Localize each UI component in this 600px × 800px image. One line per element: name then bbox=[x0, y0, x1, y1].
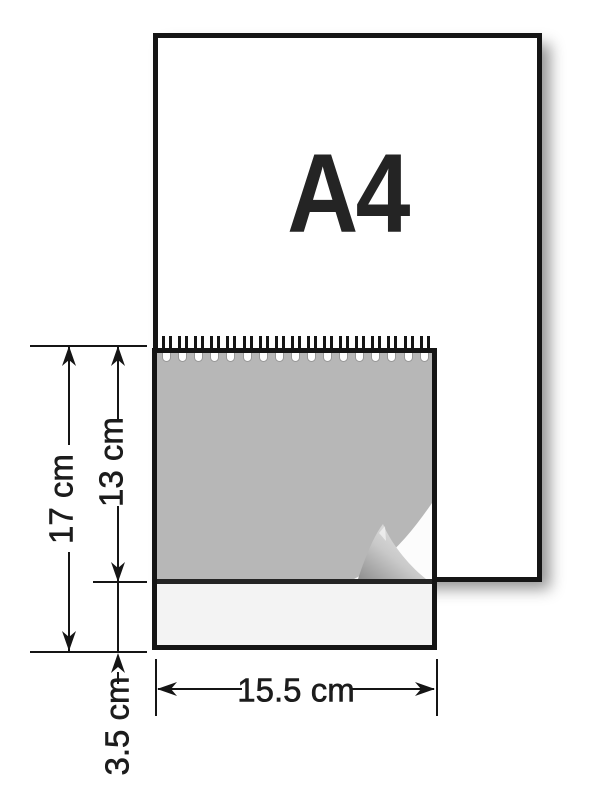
dim-35-connector-line bbox=[117, 583, 119, 651]
dim-35-label: 3.5 cm bbox=[101, 676, 134, 775]
dim-17-label: 17 cm bbox=[45, 454, 78, 544]
a4-label: A4 bbox=[181, 138, 515, 250]
dim-35-stub-line bbox=[117, 672, 119, 684]
tick-top bbox=[30, 345, 147, 347]
dim-17-line-top bbox=[68, 347, 70, 445]
dim-13-arrow-down-icon bbox=[111, 562, 125, 582]
dim-155-arrow-right-icon bbox=[415, 682, 435, 696]
spiral-notepad bbox=[152, 348, 437, 650]
dim-155-line-left bbox=[158, 688, 242, 690]
dim-155-label: 15.5 cm bbox=[237, 674, 354, 707]
tick-notepad-bottom bbox=[30, 651, 147, 653]
size-comparison-diagram: A4 bbox=[0, 0, 600, 800]
dim-155-line-right bbox=[352, 688, 434, 690]
dim-13-line-bottom bbox=[117, 506, 119, 582]
page-curl bbox=[340, 497, 432, 579]
dim-13-arrow-up-icon bbox=[111, 346, 125, 366]
dim-13-line-top bbox=[117, 347, 119, 419]
dim-17-arrow-down-icon bbox=[62, 631, 76, 651]
dim-17-arrow-up-icon bbox=[62, 346, 76, 366]
tick-width-right bbox=[436, 659, 438, 716]
dim-13-label: 13 cm bbox=[95, 417, 128, 507]
notepad-overlap-area bbox=[157, 353, 432, 579]
dim-17-line-bottom bbox=[68, 552, 70, 651]
tick-overlap-bottom bbox=[93, 581, 147, 583]
tick-width-left bbox=[155, 659, 157, 716]
dim-35-arrow-up-icon bbox=[111, 653, 125, 673]
notepad-flap-area bbox=[157, 584, 432, 645]
dim-155-arrow-left-icon bbox=[157, 682, 177, 696]
